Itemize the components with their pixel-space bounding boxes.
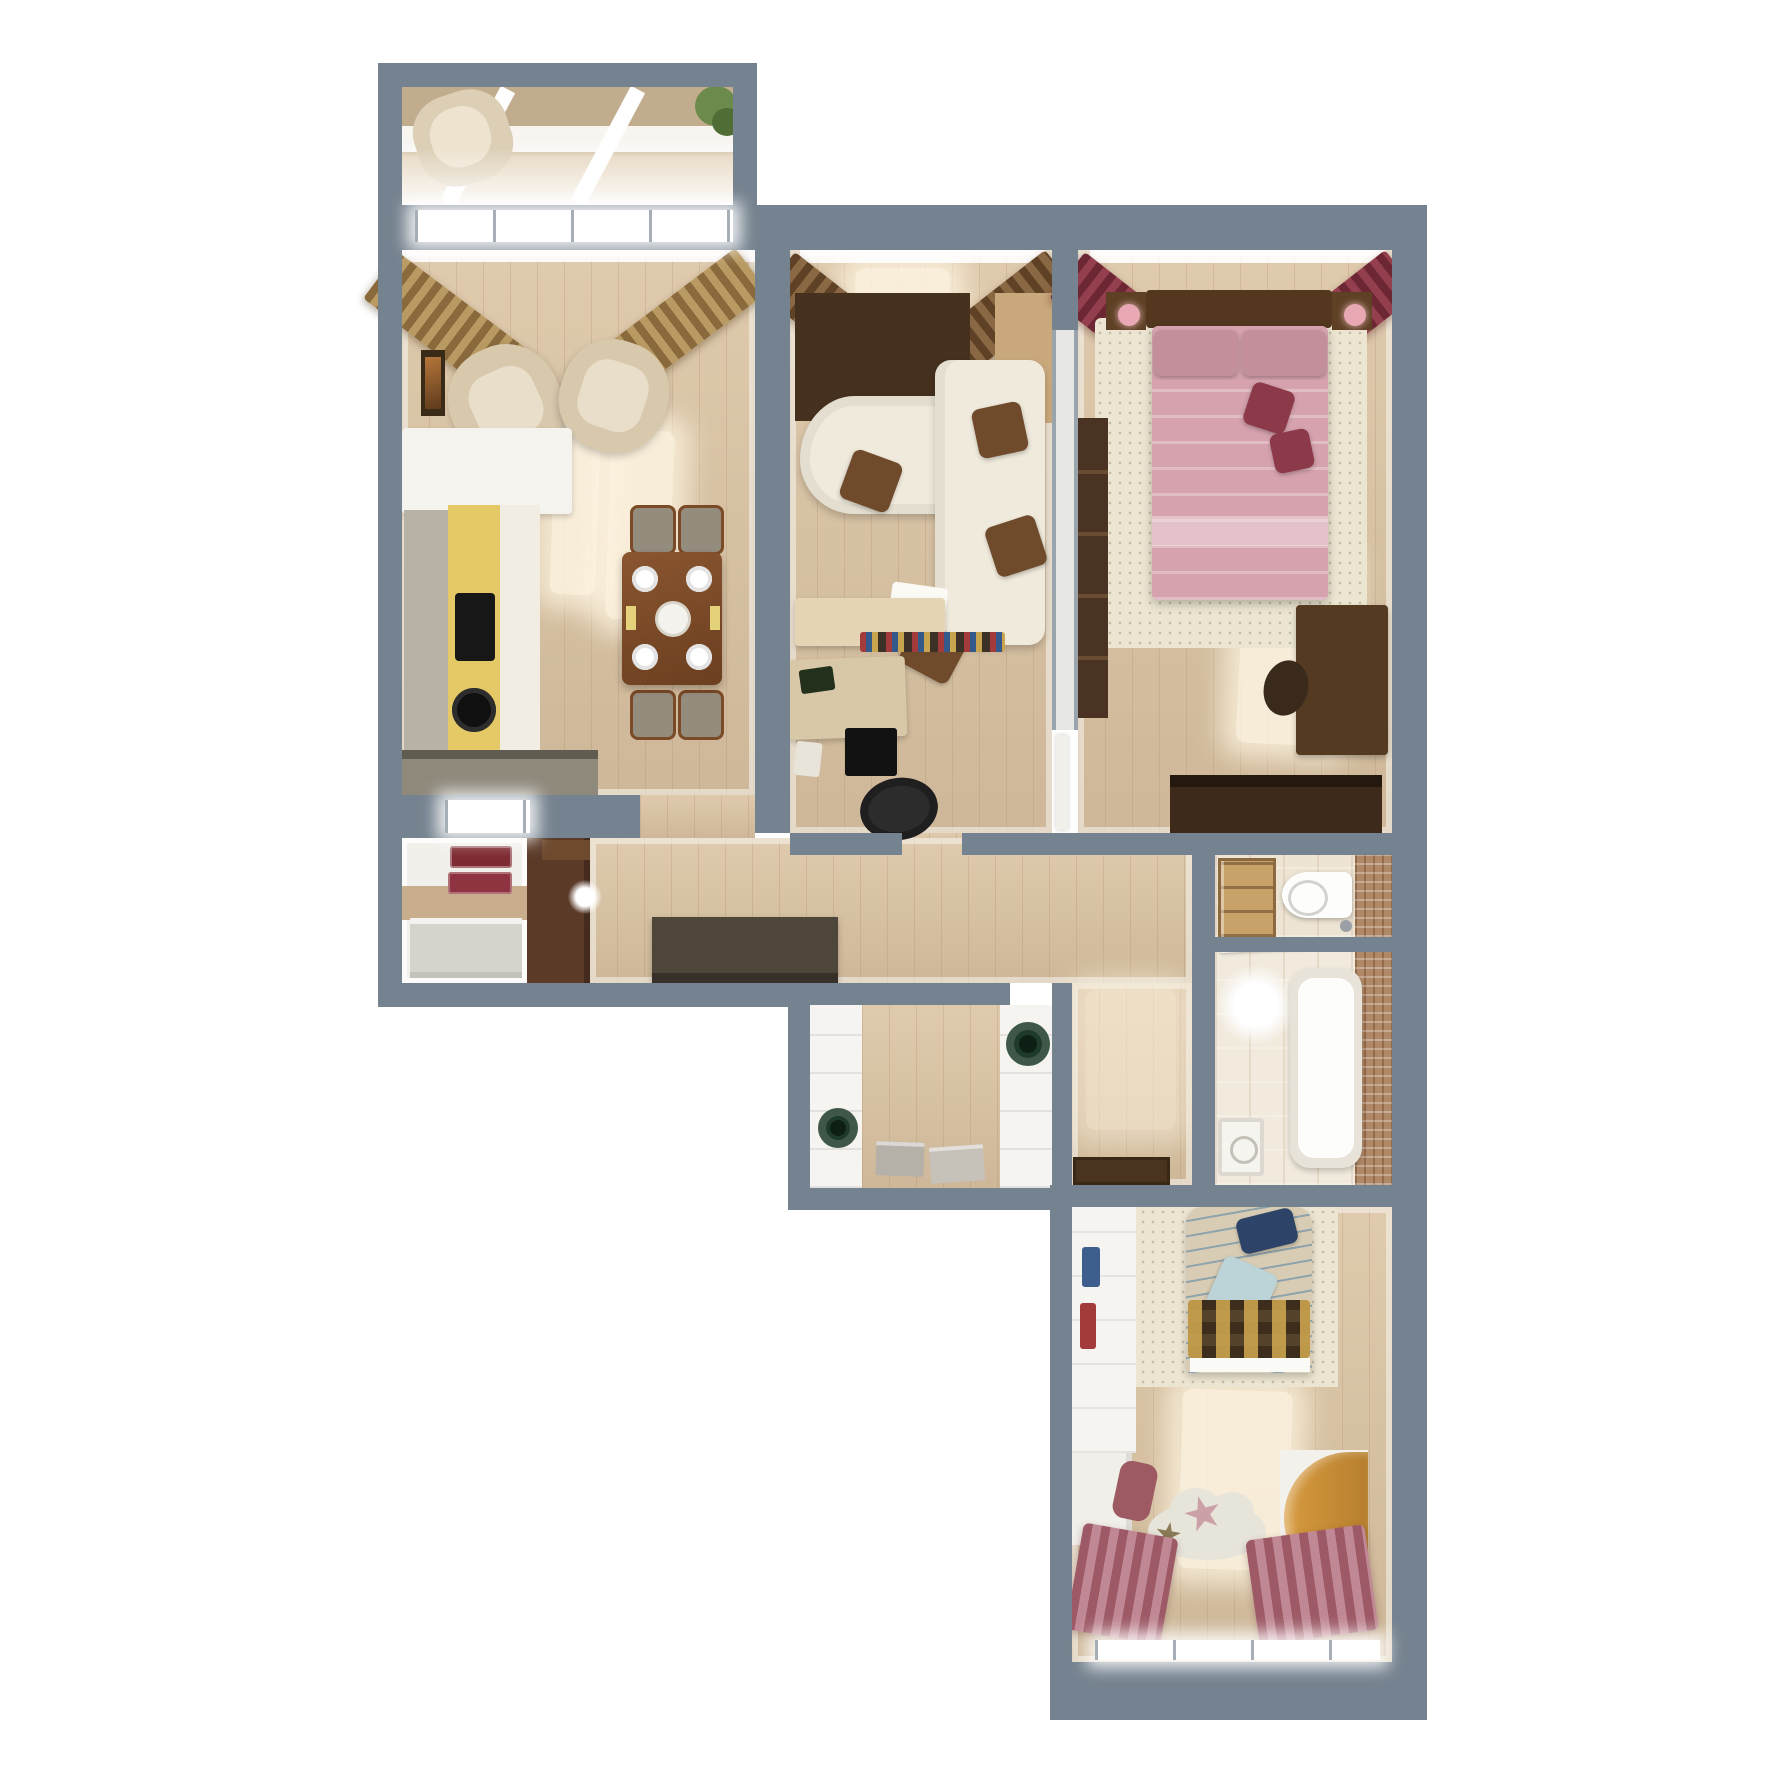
tv-monitor [845, 728, 897, 776]
bathroom-ceiling-lamp [1216, 965, 1296, 1045]
napkin [626, 606, 636, 630]
laptop [798, 666, 835, 694]
wall-kids-left [1050, 1207, 1072, 1720]
outer-wall-right [1392, 205, 1427, 1720]
kitchen-bar-counter [402, 750, 598, 795]
hanging-clothes [1082, 1247, 1100, 1287]
accent-pillow [1268, 427, 1315, 474]
kitchen-cabinet-front [500, 505, 540, 791]
balcony-wall-top [378, 63, 757, 87]
wall-lounge-bedroom-stub [1052, 250, 1078, 330]
hanging-clothes [1080, 1303, 1096, 1349]
balcony-window [415, 210, 733, 242]
washer-door [1230, 1136, 1258, 1164]
entry-doormat [1073, 1157, 1170, 1185]
coat-shelf [542, 840, 590, 860]
bedroom-wardrobe [1078, 418, 1108, 718]
wall-closet-bottom [788, 1188, 1072, 1210]
wall-kitchen-lounge [755, 250, 790, 833]
plate [632, 566, 658, 592]
closet-shelves-left [810, 1005, 862, 1188]
rose-curtain-left [1065, 1522, 1178, 1645]
plate [632, 644, 658, 670]
bedroom-dresser [1170, 775, 1382, 833]
hall-light-bulb [568, 880, 602, 914]
sunlight-patch [1086, 990, 1176, 1130]
hall-chest [652, 917, 838, 983]
wall-corridor-bath [1192, 855, 1215, 1185]
cooktop [455, 593, 495, 661]
storage-basket [818, 1108, 858, 1148]
storage-box [875, 1141, 924, 1177]
dining-chair [678, 505, 724, 555]
bathtub-basin [1298, 978, 1354, 1158]
kitchen-living-opening-floor [640, 795, 755, 838]
wc-faucet [1340, 920, 1352, 932]
duvet [1152, 380, 1328, 600]
wall-art-canvas [425, 357, 441, 409]
bedroom-door [1056, 735, 1068, 830]
bedroom-desk [1296, 605, 1388, 755]
centerpiece [658, 604, 688, 634]
duvet-fold [1152, 516, 1328, 546]
wall-wc-bath [1215, 937, 1392, 952]
wall-hall-bottom [378, 983, 810, 1007]
sofa-pillow [970, 400, 1029, 459]
basket-opening [1019, 1035, 1037, 1053]
toilet-bowl [1288, 880, 1328, 916]
kids-window [1095, 1640, 1380, 1660]
storage-box [929, 1144, 985, 1184]
bed-pillow [1242, 330, 1326, 376]
armchair-cushion [571, 353, 655, 438]
bed-footboard [1190, 1358, 1310, 1372]
rose-curtain-right [1245, 1524, 1379, 1646]
basket-opening [830, 1120, 846, 1136]
wall-bath-kids [1050, 1185, 1392, 1207]
bedside-lamp [1118, 304, 1140, 326]
patterned-blanket [1188, 1300, 1310, 1358]
plate [686, 644, 712, 670]
dining-chair [630, 505, 676, 555]
wall-closet-right [1052, 983, 1072, 1188]
dining-chair [678, 690, 724, 740]
dining-chair [630, 690, 676, 740]
wall-art [421, 350, 445, 416]
wall-hall-top-a [790, 833, 902, 855]
bathtub [1290, 968, 1362, 1168]
wall-hall-top-b [962, 833, 1392, 855]
bookshelf [860, 632, 1005, 652]
dining-table [622, 552, 722, 685]
kitchen-window-frame [402, 250, 755, 262]
bedroom-window-frame [1090, 250, 1385, 263]
navy-pillow [1235, 1207, 1300, 1256]
tablet [793, 741, 822, 778]
kitchen-upper-cabinet [402, 428, 572, 514]
apartment-floor-plan: ★ ★ [0, 0, 1776, 1776]
pantry-cabinets [410, 918, 522, 978]
kitchen-sink [452, 688, 496, 732]
lounge-window-frame [800, 250, 1045, 263]
bed-pillow [1154, 330, 1238, 376]
double-bed [1152, 326, 1328, 600]
wall-closet-left [788, 1005, 810, 1210]
suitcase [450, 846, 512, 868]
kitchen-transom-window [445, 800, 530, 833]
kids-wardrobe [1072, 1207, 1136, 1453]
washing-machine [1218, 1118, 1264, 1176]
wall-closet-top [788, 983, 1010, 1005]
napkin [710, 606, 720, 630]
balcony-wall-right [733, 63, 757, 205]
toilet [1282, 872, 1352, 918]
storage-basket [1006, 1022, 1050, 1066]
plate [686, 566, 712, 592]
sofa-body [935, 360, 1045, 645]
suitcase [448, 872, 512, 894]
wall-kids-bottom [1050, 1662, 1427, 1720]
bedside-lamp [1344, 304, 1366, 326]
wc-mosaic-wall [1355, 855, 1392, 937]
balcony-light-glow [402, 148, 733, 205]
headboard [1146, 290, 1332, 328]
wc-cabinet [1218, 858, 1276, 940]
